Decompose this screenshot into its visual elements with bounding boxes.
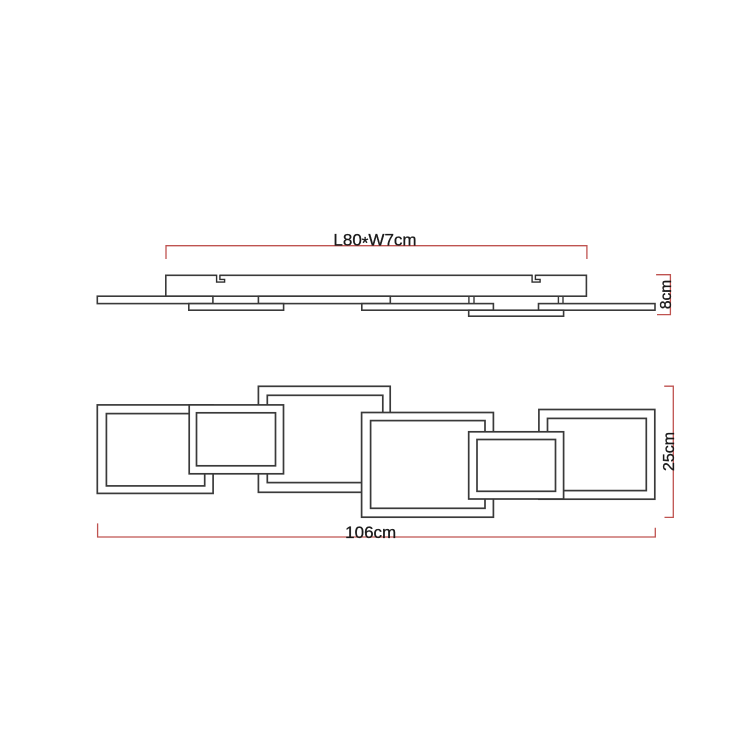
svg-text:106cm: 106cm — [345, 523, 396, 542]
svg-text:L80*W7cm: L80*W7cm — [333, 231, 416, 253]
svg-text:8cm: 8cm — [658, 280, 675, 309]
svg-text:25cm: 25cm — [661, 432, 678, 471]
